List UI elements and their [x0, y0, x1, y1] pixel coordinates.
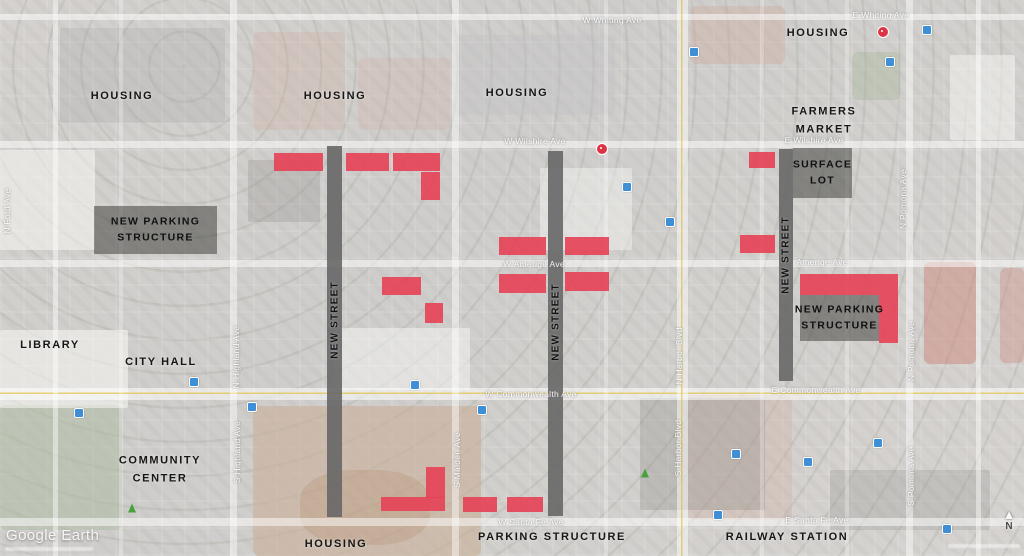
library-label: LIBRARY	[20, 337, 80, 355]
transit-icon	[410, 380, 420, 390]
street-name-label: W Amerige Ave	[503, 259, 565, 269]
street-name-label: E Commonwealth Ave	[772, 385, 861, 395]
attribution-text-blur	[948, 544, 1020, 548]
proposed-site-marker	[499, 237, 546, 255]
transit-icon	[622, 182, 632, 192]
transit-icon	[731, 449, 741, 459]
transit-icon	[74, 408, 84, 418]
housing-northeast-label: HOUSING	[787, 25, 850, 43]
compass[interactable]: ▲ N	[998, 508, 1020, 532]
new-street-label: NEW STREET	[550, 283, 561, 361]
street-name-label: S Pomona Ave	[906, 446, 916, 506]
transit-icon	[885, 57, 895, 67]
housing-north-label: HOUSING	[304, 88, 367, 106]
proposed-site-marker	[565, 272, 609, 291]
proposed-site-marker	[382, 277, 421, 295]
transit-icon	[922, 25, 932, 35]
street-name-label: W Whiting Ave	[582, 15, 641, 25]
poi-marker-icon	[596, 143, 608, 155]
street-name-label: N Highland Ave	[231, 326, 241, 389]
new-street-label: NEW STREET	[329, 281, 340, 359]
poi-marker-icon	[877, 26, 889, 38]
farmers-market-label: FARMERS MARKET	[792, 103, 857, 138]
railway-station-label: RAILWAY STATION	[726, 529, 849, 547]
proposed-site-marker	[565, 237, 609, 255]
north-arrow-icon: ▲	[998, 508, 1020, 521]
tree-marker-icon	[641, 469, 649, 478]
street-name-label: E Whiting Ave	[853, 10, 910, 20]
new-parking-structure-west-label: NEW PARKING STRUCTURE	[111, 214, 200, 247]
parking-structure-south-label: PARKING STRUCTURE	[478, 529, 626, 547]
housing-south-label: HOUSING	[305, 536, 368, 554]
proposed-site-marker	[507, 497, 543, 512]
street-name-label: E Santa Fe Ave	[785, 515, 848, 525]
compass-north-label: N	[998, 521, 1020, 532]
transit-icon	[247, 402, 257, 412]
transit-icon	[942, 524, 952, 534]
street-name-label: N Ford Ave	[2, 188, 12, 233]
proposed-site-marker	[274, 153, 323, 171]
proposed-site-marker	[381, 497, 445, 511]
proposed-site-marker	[393, 153, 440, 171]
transit-icon	[803, 457, 813, 467]
transit-icon	[189, 377, 199, 387]
transit-icon	[665, 217, 675, 227]
street-name-label: N Harbor Blvd	[674, 327, 684, 384]
google-earth-watermark: Google Earth	[6, 527, 99, 544]
street-name-label: S Highland Ave	[232, 421, 242, 483]
proposed-site-marker	[740, 235, 775, 253]
proposed-site-marker	[346, 153, 389, 171]
transit-icon	[873, 438, 883, 448]
transit-icon	[477, 405, 487, 415]
new-parking-structure-east-label: NEW PARKING STRUCTURE	[795, 302, 884, 335]
new-street-label: NEW STREET	[781, 216, 792, 294]
street-name-label: N Pomona Ave	[906, 321, 916, 381]
street-name-label: N Pomona Ave	[898, 169, 908, 229]
attribution-text-blur	[5, 547, 93, 551]
street-name-label: S Malden Ave	[452, 432, 462, 488]
street-name-label: Amerige Ave	[796, 257, 847, 267]
proposed-site-marker	[463, 497, 497, 512]
community-center-label: COMMUNITY CENTER	[119, 452, 201, 487]
street-name-label: W Wilshire Ave	[504, 136, 565, 146]
proposed-site-marker	[800, 274, 898, 295]
proposed-site-marker	[421, 172, 440, 200]
proposed-site-marker	[425, 303, 443, 323]
street-name-label: W Santa Fe Ave	[498, 517, 563, 527]
city-hall-label: CITY HALL	[125, 354, 197, 372]
map-canvas[interactable]: Google Earth ▲ N NEW STREETNEW STREETNEW…	[0, 0, 1024, 556]
tree-marker-icon	[128, 504, 136, 513]
proposed-site-marker	[426, 467, 445, 498]
housing-north-center-label: HOUSING	[486, 85, 549, 103]
transit-icon	[713, 510, 723, 520]
transit-icon	[689, 47, 699, 57]
housing-northwest-label: HOUSING	[91, 88, 154, 106]
proposed-site-marker	[749, 152, 775, 168]
surface-lot-label: SURFACE LOT	[793, 157, 852, 190]
street-name-label: W Commonwealth Ave	[485, 389, 576, 399]
street-name-label: S Harbor Blvd	[673, 420, 683, 477]
proposed-site-marker	[499, 274, 546, 293]
